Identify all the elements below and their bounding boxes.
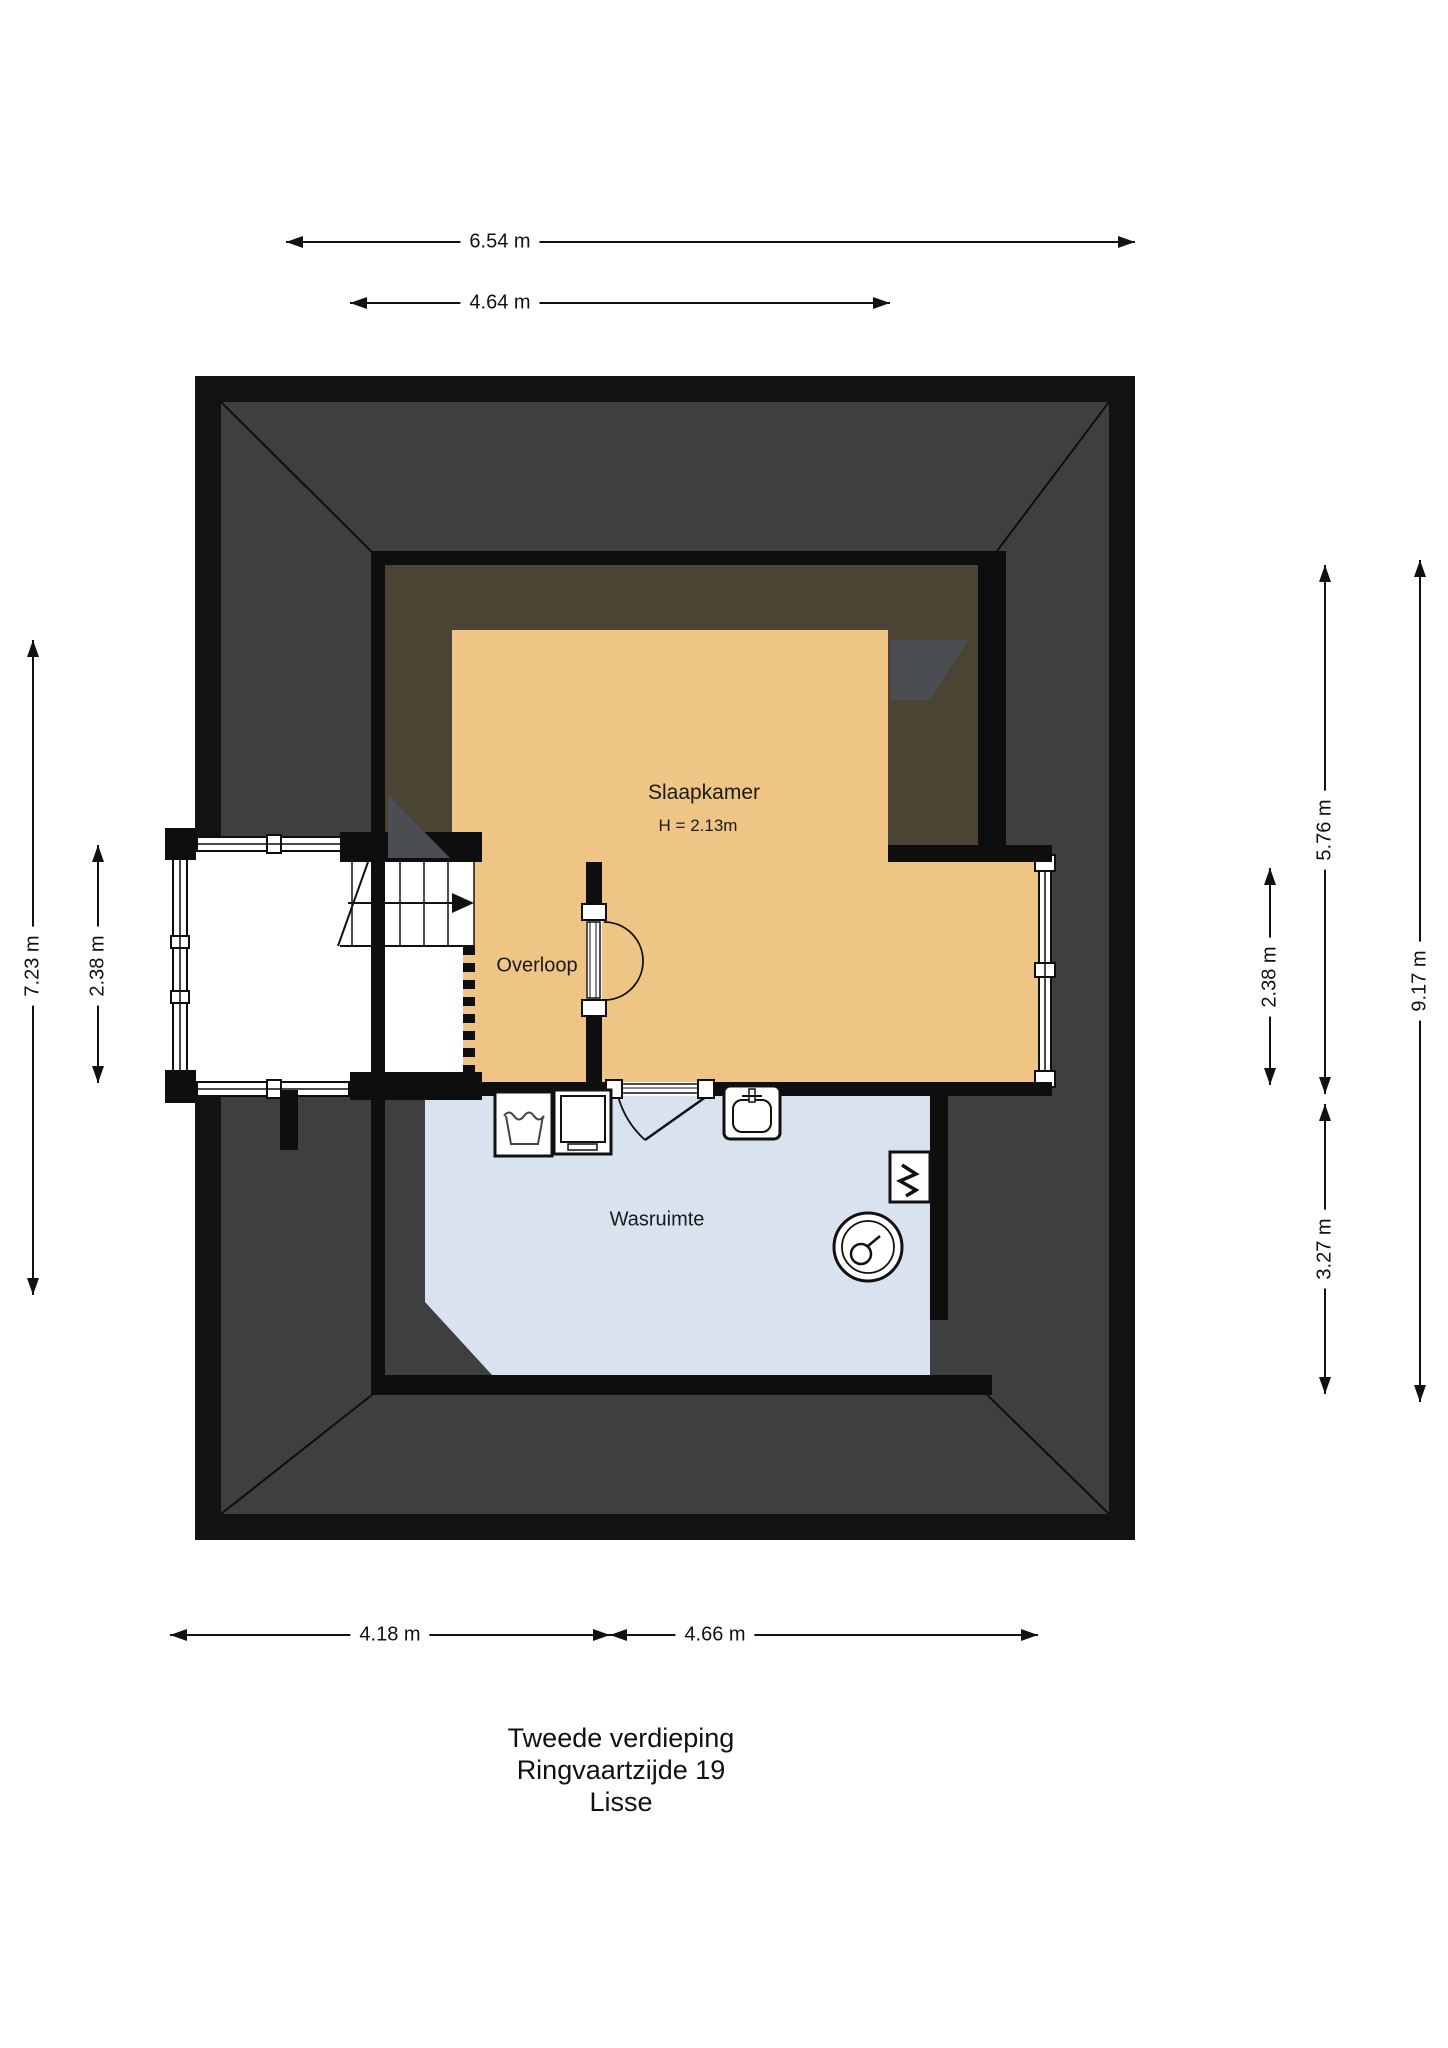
title-floor: Tweede verdieping (421, 1722, 821, 1754)
dimension-label: 2.38 m (86, 926, 111, 1005)
dimension-label: 4.64 m (460, 291, 539, 316)
dimension-line-width-inner (350, 302, 890, 304)
dimension-label: 5.76 m (1313, 790, 1338, 869)
window-mullion (1034, 962, 1056, 978)
title-city: Lisse (421, 1786, 821, 1818)
title-address: Ringvaartzijde 19 (421, 1754, 821, 1786)
dimension-label: 4.66 m (675, 1623, 754, 1648)
dimension-label: 4.18 m (350, 1623, 429, 1648)
wall-step-right (888, 845, 1052, 862)
room-label-overloop: Overloop (496, 955, 577, 978)
room-wasruimte-floor (425, 1096, 930, 1375)
dimension-line-bottom-right (610, 1634, 1038, 1636)
wall-inner-top (371, 551, 1006, 565)
wall-stub-below-dormer (280, 1090, 298, 1150)
title-block: Tweede verdieping Ringvaartzijde 19 Liss… (421, 1722, 821, 1818)
wall-inner-bottom (371, 1375, 992, 1395)
wasruimte-left-slope (385, 1096, 425, 1375)
wall-inner-right-upper (978, 551, 1006, 851)
dimension-label: 3.27 m (1313, 1209, 1338, 1288)
window-mullion (170, 935, 190, 949)
wall-slaapkamer-south-right (710, 1082, 1052, 1096)
wall-stairs-top (340, 832, 482, 862)
dimension-label: 9.17 m (1408, 941, 1433, 1020)
floorplan-page: Slaapkamer H = 2.13m Overloop Wasruimte … (0, 0, 1448, 2048)
dormer-post-bottom-left (165, 1070, 196, 1103)
wall-overloop-door-lower (586, 1000, 602, 1082)
low-ceiling-zone-right (888, 630, 978, 845)
wall-wasruimte-right (930, 1094, 948, 1320)
window-mullion (170, 990, 190, 1004)
room-height-note: H = 2.13m (659, 816, 738, 836)
dimension-label: 2.38 m (1258, 937, 1283, 1016)
window-mullion (266, 834, 282, 854)
wasruimte-right-slope (948, 1094, 992, 1375)
dormer-window-left (172, 858, 188, 1074)
low-ceiling-zone-top (385, 565, 978, 630)
stairs-floor (340, 862, 474, 946)
dimension-line-width-total (286, 241, 1135, 243)
dormer-post-top-left (165, 828, 196, 860)
low-ceiling-zone-left (385, 630, 452, 860)
wall-dormer-bottom-right (350, 1072, 482, 1100)
room-label-wasruimte: Wasruimte (610, 1209, 705, 1232)
dimension-label: 7.23 m (21, 926, 46, 1005)
room-label-slaapkamer: Slaapkamer (648, 781, 760, 805)
dimension-label: 6.54 m (460, 230, 539, 255)
wall-inner-left (371, 551, 385, 1395)
wall-overloop-door-upper (586, 862, 602, 920)
